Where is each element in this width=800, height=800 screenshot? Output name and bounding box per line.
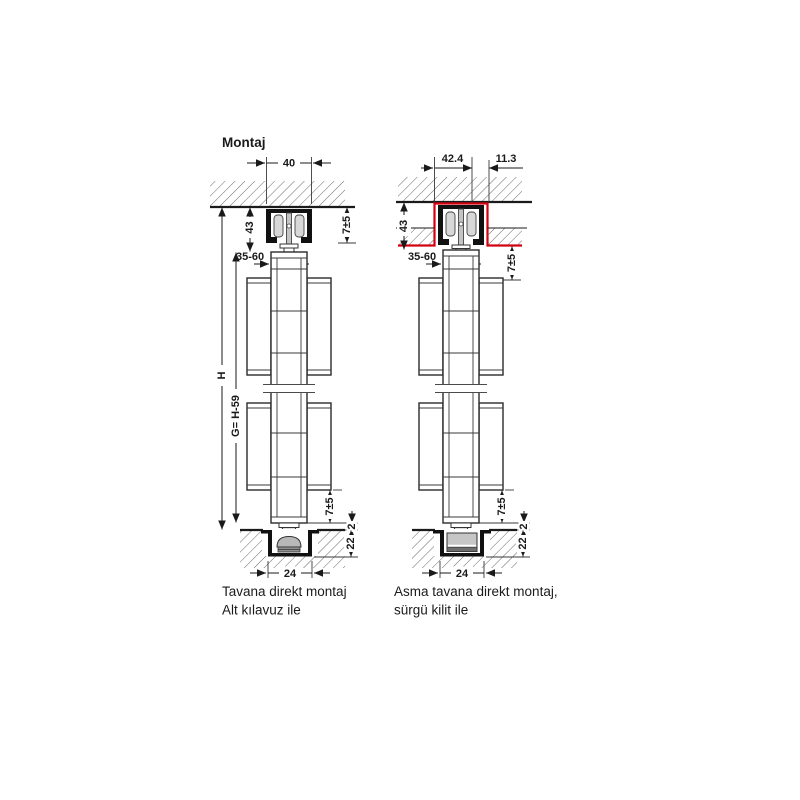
dim-bottom-adjust-label: 7±5: [324, 497, 336, 515]
break-lines: [263, 385, 315, 393]
dim-top-adjust-label: 7±5: [341, 216, 353, 234]
dim-bottom-adjust-label: 7±5: [496, 497, 508, 515]
break-lines: [435, 385, 487, 393]
figure-suspended-ceiling-mount: 42.4 11.3: [394, 153, 558, 618]
dim-track-height: 43: [243, 208, 257, 252]
dim-top-adjust: 7±5: [503, 247, 521, 281]
dim-door-thickness-label: 35-60: [236, 251, 264, 263]
dim-bottom-adjust: 7±5: [495, 491, 509, 523]
montage-diagram: Montaj 40: [0, 0, 800, 800]
dim-track-width-label: 40: [283, 158, 295, 170]
dim-door-height-label: G= H-59: [230, 395, 242, 437]
ceiling-hatch: [210, 181, 355, 207]
dim-top-adjust-label: 7±5: [506, 254, 518, 272]
bottom-guide: [277, 537, 301, 553]
dim-recess-width-label: 42.4: [442, 153, 464, 165]
dim-channel-depth-label: 22: [345, 537, 357, 549]
dim-top-adjust: 7±5: [338, 208, 356, 244]
figure1-caption-line2: Alt kılavuz ile: [222, 603, 301, 618]
dim-floor-gap-label: 2: [518, 523, 530, 529]
dim-door-thickness-label: 35-60: [408, 251, 436, 263]
figure-direct-ceiling-mount: 40 43 7±5: [210, 156, 358, 618]
figure1-caption-line1: Tavana direkt montaj: [222, 584, 347, 599]
montage-diagram-page: Montaj 40: [0, 0, 800, 800]
dim-recess-offset: 11.3: [489, 153, 523, 168]
dim-channel-width-label: 24: [456, 568, 469, 580]
page-title: Montaj: [222, 135, 266, 150]
roller-carriage: [274, 213, 304, 252]
dim-channel-width-label: 24: [284, 568, 297, 580]
dim-recess-offset-label: 11.3: [496, 153, 517, 165]
dim-total-height-label: H: [216, 371, 228, 379]
dim-channel-depth: 22: [344, 531, 358, 557]
dim-channel-depth: 22: [516, 531, 530, 557]
dim-bottom-adjust: 7±5: [323, 491, 337, 523]
roller-carriage: [446, 209, 476, 252]
dim-track-height-label: 43: [398, 220, 410, 232]
dim-door-height: G= H-59: [229, 253, 243, 523]
figure2-caption-line2: sürgü kilit ile: [394, 603, 468, 618]
dim-total-height: H: [215, 208, 229, 530]
ceiling-hatch: [396, 177, 532, 202]
dim-floor-gap-label: 2: [346, 523, 358, 529]
slide-lock-guide: [447, 533, 477, 552]
figure2-caption-line1: Asma tavana direkt montaj,: [394, 584, 558, 599]
dim-track-height-label: 43: [244, 221, 256, 233]
dim-channel-depth-label: 22: [517, 537, 529, 549]
